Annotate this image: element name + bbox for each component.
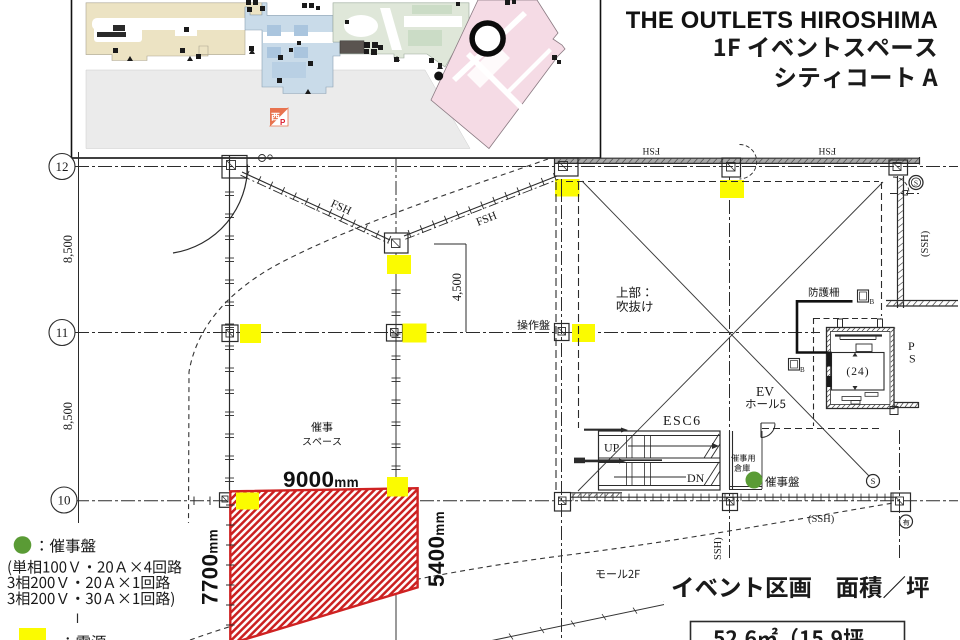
svg-text:UP: UP [604,441,620,455]
svg-text:8,500: 8,500 [61,235,75,263]
svg-text:S: S [871,476,876,486]
svg-text:8,500: 8,500 [61,402,75,430]
svg-text:SSH): SSH) [713,537,724,560]
svg-text:B: B [870,298,875,306]
svg-text:S: S [914,179,918,188]
svg-text:FSH: FSH [818,145,836,155]
svg-text:FSH: FSH [642,145,660,155]
svg-text:DN: DN [687,471,705,485]
svg-text:S: S [909,352,916,366]
svg-text:(SSH): (SSH) [808,514,835,525]
svg-text:(24): (24) [846,366,869,378]
svg-text:THE OUTLETS HIROSHIMA: THE OUTLETS HIROSHIMA [626,7,938,34]
svg-text:11: 11 [56,325,69,340]
svg-text:(SSH): (SSH) [920,230,931,257]
svg-text:10: 10 [58,493,71,508]
svg-text:12: 12 [56,159,69,174]
svg-text:ESC6: ESC6 [663,414,702,429]
svg-text:4,500: 4,500 [450,273,464,301]
svg-text:P: P [280,118,286,127]
svg-text:B: B [800,366,805,374]
svg-text:EV: EV [756,384,774,399]
